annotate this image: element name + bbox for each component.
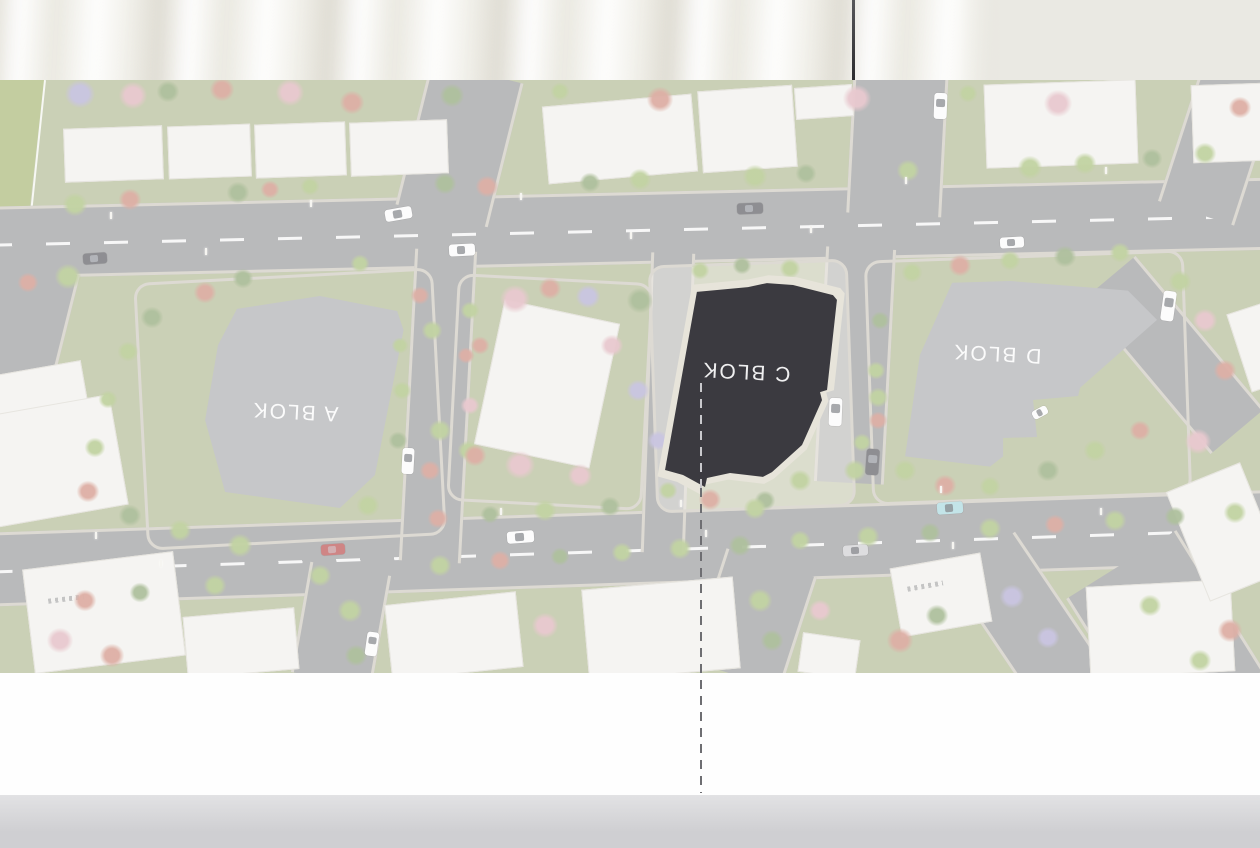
car xyxy=(933,93,947,119)
tree xyxy=(470,336,490,355)
tree xyxy=(550,82,570,101)
street-lamp xyxy=(630,232,632,239)
tree xyxy=(1192,308,1218,333)
tree xyxy=(480,505,500,524)
tree xyxy=(531,612,559,639)
tree xyxy=(732,256,752,275)
tree xyxy=(419,460,441,481)
car xyxy=(1000,236,1025,248)
building xyxy=(0,394,129,528)
tree xyxy=(948,254,972,277)
tree xyxy=(1223,501,1247,524)
tree xyxy=(789,530,811,551)
tree xyxy=(203,574,227,597)
tree xyxy=(1109,242,1131,263)
car-glass xyxy=(1007,238,1015,246)
street-lamp xyxy=(810,226,812,233)
tree xyxy=(690,261,710,280)
car xyxy=(737,202,763,214)
tree xyxy=(99,643,125,668)
tree xyxy=(1213,359,1237,382)
tree xyxy=(658,481,678,500)
tree xyxy=(579,172,601,193)
car xyxy=(828,398,842,426)
tree xyxy=(868,411,888,430)
tree xyxy=(958,84,978,103)
tree xyxy=(979,476,1001,497)
tree xyxy=(901,262,923,283)
street-lamp xyxy=(1100,508,1102,515)
building xyxy=(542,94,698,185)
road-center-dashes xyxy=(0,214,1260,247)
block-label-a: A BLOK xyxy=(251,397,339,426)
tree xyxy=(1103,509,1127,532)
tree xyxy=(919,522,941,543)
tree xyxy=(460,301,480,320)
car xyxy=(449,243,476,256)
tree xyxy=(64,80,96,109)
tree xyxy=(350,254,370,273)
building xyxy=(697,85,797,173)
tree xyxy=(795,163,817,184)
tree xyxy=(599,496,621,517)
car-glass xyxy=(935,99,945,107)
tree xyxy=(842,84,872,113)
building xyxy=(183,607,300,673)
building xyxy=(384,591,523,673)
tree xyxy=(866,361,886,380)
tree xyxy=(808,599,832,622)
tree xyxy=(209,80,235,102)
tree xyxy=(156,80,180,103)
tree xyxy=(978,517,1002,540)
block-label-d: D BLOK xyxy=(952,339,1042,368)
car-glass xyxy=(745,204,754,212)
car xyxy=(937,501,964,515)
street-lamp xyxy=(310,200,312,207)
street-lamp xyxy=(952,542,954,549)
tree xyxy=(1138,594,1162,617)
car-glass xyxy=(945,503,954,512)
street-lamp xyxy=(1105,167,1107,174)
tree xyxy=(611,542,633,563)
tree xyxy=(933,474,957,497)
tree xyxy=(1083,439,1107,462)
block-label-c: C BLOK xyxy=(701,357,791,386)
tree xyxy=(129,582,151,603)
tree xyxy=(391,337,409,354)
board-white-margin xyxy=(0,673,1260,795)
tree xyxy=(463,444,487,467)
section-guide-line-upper xyxy=(700,383,702,488)
wall-shade xyxy=(960,0,1260,80)
car xyxy=(842,544,868,556)
street-lamp xyxy=(110,212,112,219)
tree xyxy=(1043,89,1073,118)
tree xyxy=(886,627,914,654)
street-lamp xyxy=(680,500,682,507)
tree xyxy=(98,390,118,409)
tree xyxy=(356,494,380,517)
tree xyxy=(893,459,917,482)
car xyxy=(83,252,108,265)
tree xyxy=(1184,428,1212,455)
tree xyxy=(1193,142,1217,165)
tree xyxy=(76,480,100,503)
car-glass xyxy=(457,246,466,255)
tree xyxy=(410,286,430,305)
tree xyxy=(118,188,142,211)
tree xyxy=(1036,626,1060,649)
car xyxy=(401,448,414,475)
tree xyxy=(475,175,499,198)
tree xyxy=(337,598,363,623)
car-glass xyxy=(850,546,858,554)
tree xyxy=(999,584,1025,609)
car-glass xyxy=(368,637,378,645)
hanger-rod xyxy=(852,0,855,80)
tree xyxy=(227,533,253,558)
tree xyxy=(1129,420,1151,441)
tree xyxy=(747,588,773,613)
street-lamp xyxy=(95,532,97,539)
tree xyxy=(17,272,39,293)
tree xyxy=(140,306,164,329)
tree xyxy=(550,547,570,566)
tree xyxy=(925,604,949,627)
building xyxy=(581,577,740,673)
tree xyxy=(567,463,593,488)
curtain-drapes xyxy=(0,0,1040,80)
car-glass xyxy=(392,209,402,219)
tree xyxy=(1217,618,1243,643)
tree xyxy=(428,419,452,442)
tree xyxy=(867,387,889,408)
building xyxy=(167,124,252,180)
tree xyxy=(1188,649,1212,672)
map-base-layer xyxy=(0,80,1260,673)
building-marks xyxy=(907,581,943,592)
room-backdrop xyxy=(0,0,1260,80)
tree xyxy=(999,250,1021,271)
scene: A BLOK C BLOK D BLOK xyxy=(0,0,1260,848)
tree xyxy=(300,177,320,196)
tree xyxy=(1073,152,1097,175)
tree xyxy=(728,534,752,557)
tree xyxy=(628,168,652,191)
street-lamp xyxy=(905,177,907,184)
tree xyxy=(54,263,82,290)
tree xyxy=(428,554,452,577)
tree xyxy=(533,499,557,522)
tree xyxy=(626,379,650,402)
tree xyxy=(439,83,465,108)
tree xyxy=(896,159,920,182)
tree xyxy=(538,277,562,300)
street-lamp xyxy=(205,248,207,255)
street-lamp xyxy=(160,560,162,567)
floor xyxy=(0,795,1260,848)
street-lamp xyxy=(705,530,707,537)
tree xyxy=(392,381,412,400)
tree xyxy=(421,320,443,341)
street-lamp xyxy=(520,193,522,200)
tree xyxy=(1141,148,1163,169)
tree xyxy=(1168,270,1192,293)
car-glass xyxy=(514,532,523,541)
tree xyxy=(117,341,139,362)
street-lamp xyxy=(940,486,942,493)
tree xyxy=(575,284,601,309)
tree xyxy=(489,550,511,571)
tree xyxy=(73,589,97,612)
tree xyxy=(275,80,305,107)
building xyxy=(63,125,164,182)
tree xyxy=(1017,155,1043,180)
tree xyxy=(460,396,480,415)
tree xyxy=(260,180,280,199)
tree xyxy=(168,519,192,542)
building xyxy=(254,121,347,178)
tree xyxy=(1228,96,1252,119)
tree xyxy=(118,81,148,110)
tree xyxy=(600,334,624,357)
tree xyxy=(193,281,217,304)
tree xyxy=(1053,245,1077,268)
tree xyxy=(646,86,674,113)
tree xyxy=(743,497,767,520)
car-glass xyxy=(328,545,336,553)
building xyxy=(797,632,860,673)
tree xyxy=(84,437,106,458)
tree xyxy=(1036,459,1060,482)
building xyxy=(349,119,449,176)
car-glass xyxy=(404,454,413,462)
tree xyxy=(870,311,890,330)
tree xyxy=(626,287,654,314)
tree xyxy=(760,629,784,652)
tree xyxy=(499,284,531,314)
tree xyxy=(427,508,449,529)
tree xyxy=(504,450,536,480)
tree xyxy=(433,172,457,195)
car xyxy=(506,530,534,544)
tree xyxy=(308,564,332,587)
car xyxy=(321,543,346,556)
site-plan-map[interactable]: A BLOK C BLOK D BLOK xyxy=(0,80,1260,673)
tree xyxy=(62,192,88,217)
tree xyxy=(1044,514,1066,535)
tree xyxy=(339,90,365,115)
tree xyxy=(232,268,254,289)
tree xyxy=(788,469,812,492)
car-glass xyxy=(867,454,877,462)
tree xyxy=(118,504,142,527)
tree xyxy=(1164,506,1186,527)
tree xyxy=(843,459,867,482)
tree xyxy=(779,258,801,279)
car-glass xyxy=(90,254,98,262)
car xyxy=(865,449,880,476)
tree xyxy=(226,181,250,204)
tree xyxy=(668,537,692,560)
tree xyxy=(742,164,768,189)
street-lamp xyxy=(500,508,502,515)
car-glass xyxy=(830,404,840,413)
car-glass xyxy=(1163,297,1174,307)
section-guide-line-lower xyxy=(700,488,702,793)
tree xyxy=(46,627,74,654)
car-glass xyxy=(1036,408,1044,416)
